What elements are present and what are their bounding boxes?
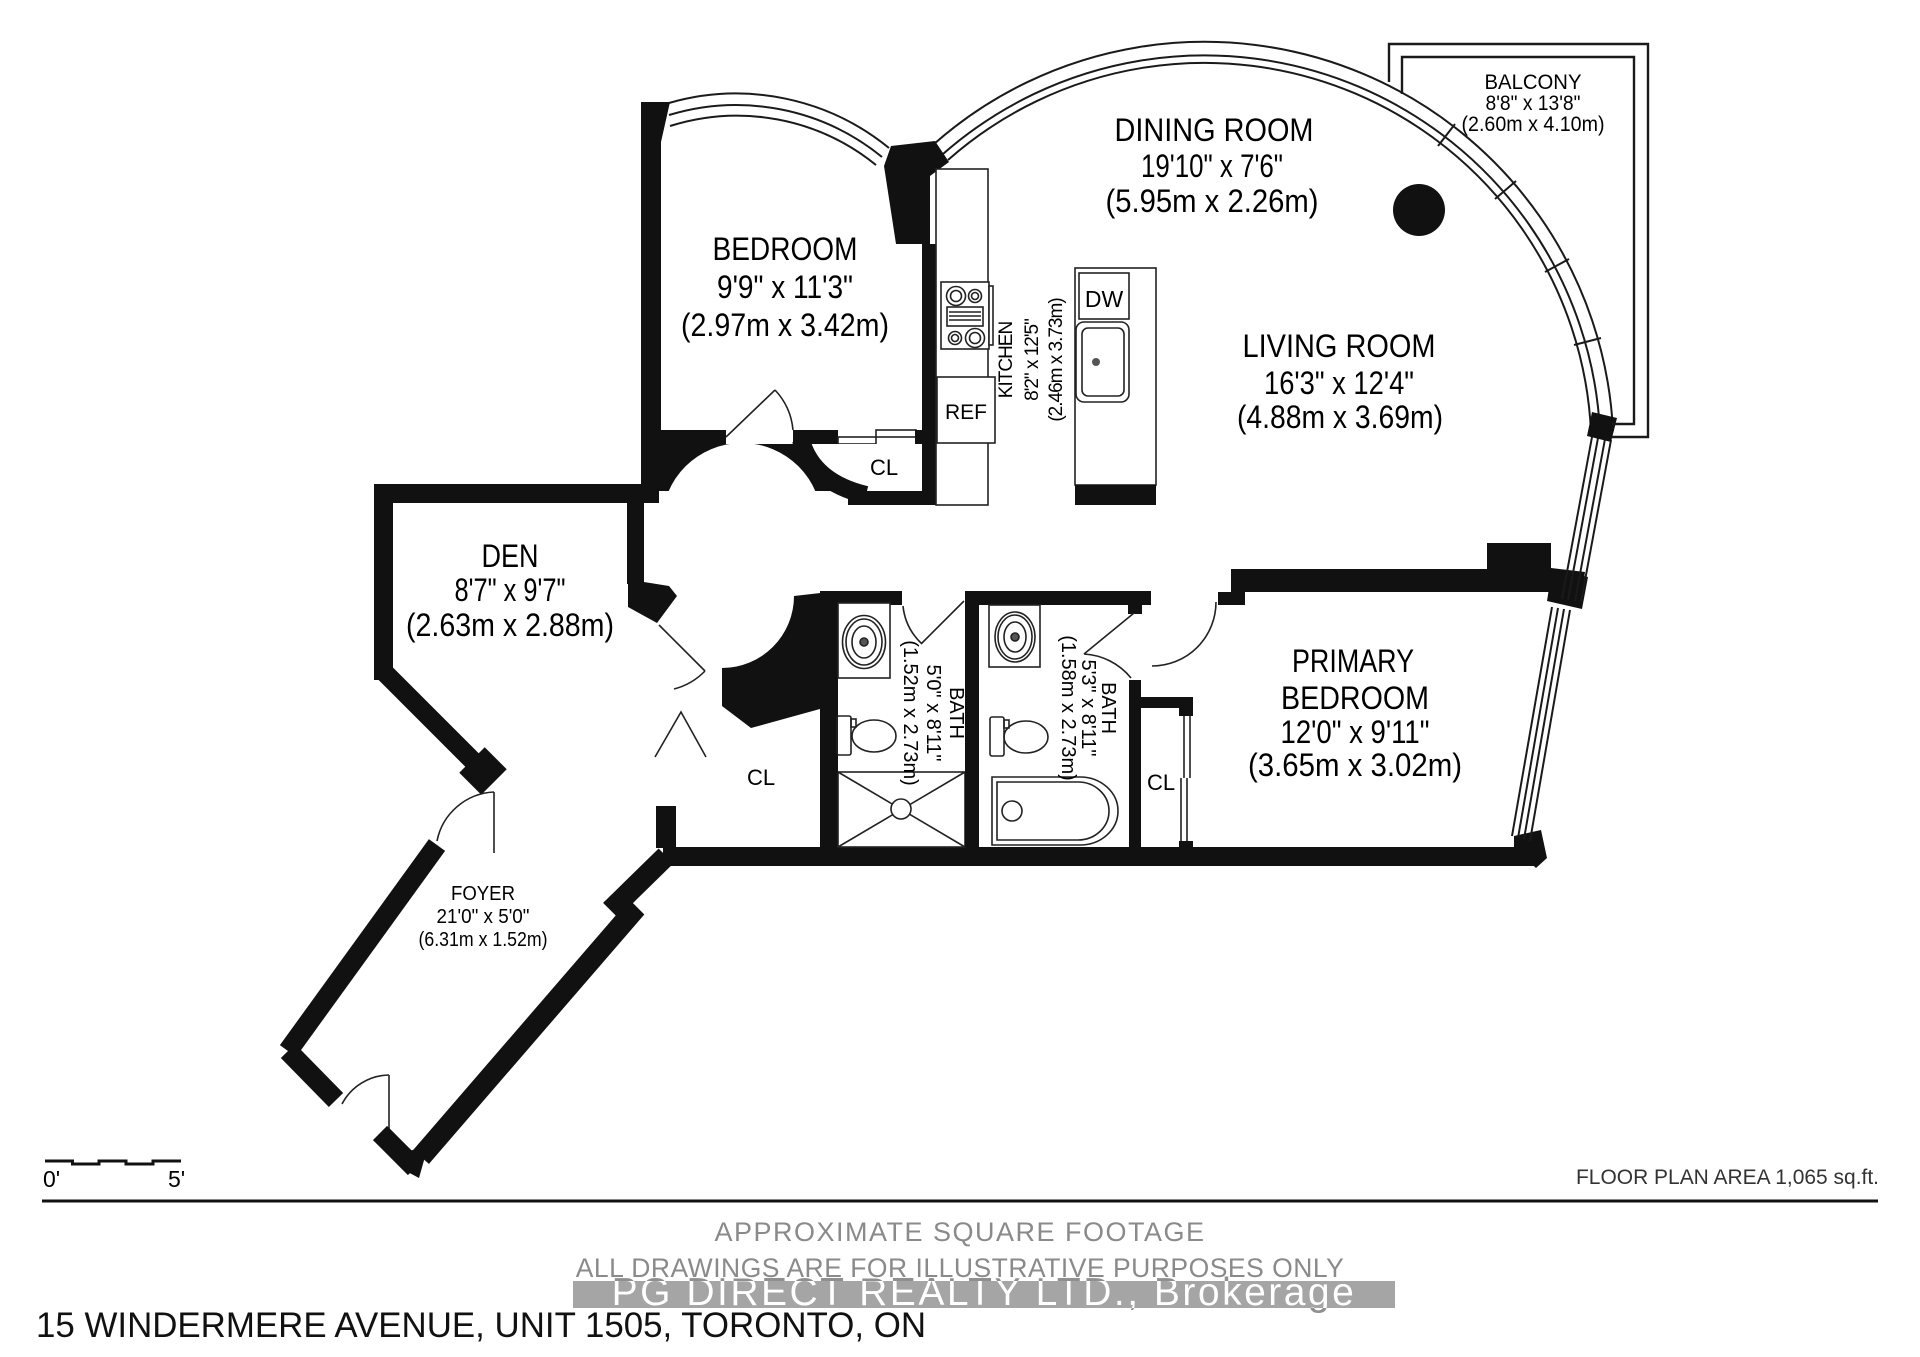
- svg-text:PRIMARY: PRIMARY: [1292, 643, 1414, 679]
- svg-text:8'7" x 9'7": 8'7" x 9'7": [455, 572, 566, 608]
- svg-text:(3.65m x 3.02m): (3.65m x 3.02m): [1248, 747, 1462, 783]
- svg-text:REF: REF: [945, 401, 987, 424]
- svg-text:(2.63m x 2.88m): (2.63m x 2.88m): [406, 607, 614, 643]
- svg-text:15 WINDERMERE AVENUE, UNIT 150: 15 WINDERMERE AVENUE, UNIT 1505, TORONTO…: [36, 1306, 926, 1345]
- svg-text:(2.97m x 3.42m): (2.97m x 3.42m): [681, 307, 889, 343]
- svg-text:APPROXIMATE SQUARE FOOTAGE: APPROXIMATE SQUARE FOOTAGE: [714, 1217, 1205, 1247]
- svg-text:12'0" x 9'11": 12'0" x 9'11": [1281, 714, 1430, 750]
- svg-text:KITCHEN: KITCHEN: [996, 322, 1017, 399]
- svg-text:21'0" x 5'0": 21'0" x 5'0": [437, 906, 530, 928]
- svg-text:5': 5': [168, 1166, 185, 1192]
- svg-text:(2.60m x 4.10m): (2.60m x 4.10m): [1462, 112, 1605, 136]
- svg-text:CL: CL: [747, 765, 775, 790]
- svg-text:BATH: BATH: [1097, 682, 1119, 734]
- svg-text:0': 0': [43, 1166, 60, 1192]
- svg-text:CL: CL: [870, 455, 898, 480]
- svg-text:(1.58m x 2.73m): (1.58m x 2.73m): [1057, 635, 1079, 781]
- svg-text:(1.52m x 2.73m): (1.52m x 2.73m): [899, 640, 921, 786]
- svg-text:19'10" x 7'6": 19'10" x 7'6": [1141, 148, 1283, 184]
- svg-text:9'9" x 11'3": 9'9" x 11'3": [717, 269, 853, 305]
- svg-text:CL: CL: [1147, 770, 1175, 795]
- svg-text:5'3" x 8'11": 5'3" x 8'11": [1077, 659, 1099, 756]
- svg-text:(4.88m x 3.69m): (4.88m x 3.69m): [1237, 399, 1443, 435]
- svg-text:8'2" x 12'5": 8'2" x 12'5": [1022, 319, 1043, 401]
- svg-text:LIVING ROOM: LIVING ROOM: [1243, 328, 1436, 364]
- svg-text:5'0" x 8'11": 5'0" x 8'11": [922, 664, 944, 761]
- svg-text:BATH: BATH: [945, 687, 967, 739]
- svg-text:16'3" x 12'4": 16'3" x 12'4": [1264, 365, 1414, 401]
- svg-text:DEN: DEN: [482, 538, 539, 574]
- svg-text:(2.46m x 3.73m): (2.46m x 3.73m): [1046, 298, 1067, 422]
- svg-text:BEDROOM: BEDROOM: [713, 231, 858, 267]
- svg-text:FLOOR PLAN AREA 1,065 sq.ft.: FLOOR PLAN AREA 1,065 sq.ft.: [1576, 1166, 1879, 1189]
- svg-text:(6.31m x 1.52m): (6.31m x 1.52m): [419, 929, 548, 951]
- svg-text:(5.95m x 2.26m): (5.95m x 2.26m): [1106, 183, 1319, 219]
- svg-text:DINING ROOM: DINING ROOM: [1115, 112, 1314, 148]
- svg-text:BEDROOM: BEDROOM: [1281, 680, 1429, 716]
- svg-text:DW: DW: [1085, 286, 1124, 312]
- svg-text:FOYER: FOYER: [451, 883, 515, 905]
